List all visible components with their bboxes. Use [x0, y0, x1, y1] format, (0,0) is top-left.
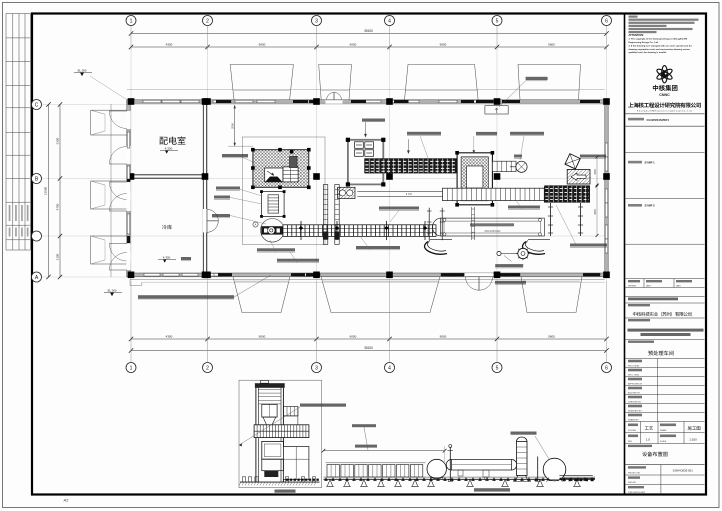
svg-text:EL.000: EL.000 — [108, 289, 117, 293]
svg-text:4300: 4300 — [166, 43, 173, 47]
svg-text:9000: 9000 — [259, 335, 266, 339]
svg-text:APPROVED BY: APPROVED BY — [628, 382, 643, 385]
svg-text:CO-SPZ0472/W74: CO-SPZ0472/W74 — [647, 118, 670, 122]
svg-text:3000: 3000 — [594, 169, 597, 175]
svg-text:1.0: 1.0 — [646, 438, 651, 442]
svg-text:SYWP 1: SYWP 1 — [645, 161, 656, 165]
svg-text:35100: 35100 — [364, 29, 373, 33]
svg-text:DRAWN BY: DRAWN BY — [628, 418, 639, 421]
svg-text:1: 1 — [130, 18, 133, 24]
svg-text:SCALE: SCALE — [660, 440, 667, 443]
svg-text:2. If the drawing isn’t stampe: 2. If the drawing isn’t stamped with our… — [629, 44, 692, 47]
svg-text:3800: 3800 — [594, 209, 597, 215]
svg-text:CNNC: CNNC — [659, 93, 670, 97]
svg-text:SYSTEM: SYSTEM — [628, 430, 636, 432]
svg-text:35100: 35100 — [364, 346, 373, 350]
svg-text:CHECKED BY: CHECKED BY — [628, 401, 642, 403]
svg-text:9000: 9000 — [440, 43, 447, 47]
svg-text:5600: 5600 — [548, 43, 555, 47]
svg-text:AUDITED BY: AUDITED BY — [628, 391, 641, 394]
svg-text:5: 5 — [496, 365, 499, 371]
svg-text:9000: 9000 — [440, 335, 447, 339]
svg-text:2NC100X402: 2NC100X402 — [484, 229, 501, 233]
svg-text:REV.: REV. — [628, 441, 633, 443]
svg-text:qualified seal, the drawing is: qualified seal, the drawing is invalid. — [629, 51, 667, 54]
svg-text:4.300: 4.300 — [165, 147, 173, 151]
svg-text:3: 3 — [315, 18, 318, 24]
svg-text:6: 6 — [605, 365, 608, 371]
svg-text:VERSION: VERSION — [628, 285, 637, 287]
svg-text:4: 4 — [388, 365, 391, 371]
svg-text:PROJ. MGR.: PROJ. MGR. — [628, 365, 640, 367]
svg-text:13080: 13080 — [44, 186, 48, 195]
svg-text:Engineering Design Co., Ltd.: Engineering Design Co., Ltd. — [629, 41, 659, 44]
svg-text:4.300: 4.300 — [163, 256, 171, 260]
svg-text:3: 3 — [315, 365, 318, 371]
svg-text:A: A — [255, 223, 257, 227]
svg-text:SJHV-D025-001: SJHV-D025-001 — [673, 469, 694, 473]
svg-text:1: 1 — [130, 365, 133, 371]
svg-text:DATE: DATE — [676, 284, 681, 287]
svg-text:4300: 4300 — [166, 335, 173, 339]
svg-text:6000: 6000 — [350, 43, 357, 47]
svg-text:9000: 9000 — [259, 43, 266, 47]
svg-text:8 10X: 8 10X — [406, 193, 413, 196]
svg-text:2: 2 — [206, 18, 209, 24]
svg-text:6: 6 — [605, 18, 608, 24]
svg-text:6000: 6000 — [350, 335, 357, 339]
svg-text:PUBLICATION DATE: PUBLICATION DATE — [628, 491, 646, 494]
svg-text:PROJECT NO.: PROJECT NO. — [628, 472, 641, 474]
svg-text:2500: 2500 — [230, 123, 234, 129]
svg-text:DESIGNED BY: DESIGNED BY — [628, 410, 642, 412]
svg-text:SPCL. MGR.: SPCL. MGR. — [628, 374, 640, 376]
svg-text:4: 4 — [388, 18, 391, 24]
svg-text:DWG NO.: DWG NO. — [628, 482, 637, 484]
svg-text:6300: 6300 — [56, 137, 60, 144]
svg-text:4700: 4700 — [56, 203, 60, 210]
svg-text:SYWP 2: SYWP 2 — [645, 204, 656, 208]
svg-text:3100: 3100 — [56, 253, 60, 260]
svg-text:drawing registration seal, and: drawing registration seal, and construct… — [629, 48, 691, 51]
svg-text:S h a n g h a i K M E n g i: S h a n g h a i K M E n g i n e e r i n … — [637, 109, 693, 112]
svg-text:ATTENTION:: ATTENTION: — [629, 33, 645, 37]
svg-text:2: 2 — [206, 365, 209, 371]
svg-text:EL.000: EL.000 — [78, 69, 87, 73]
svg-text:DATE: DATE — [646, 284, 651, 287]
svg-text:1:100: 1:100 — [689, 438, 697, 442]
svg-text:C: C — [35, 102, 39, 108]
svg-text:A2: A2 — [64, 498, 70, 503]
svg-text:5: 5 — [496, 18, 499, 24]
svg-text:5600: 5600 — [548, 335, 555, 339]
svg-text:1. The copyright of the drawin: 1. The copyright of the drawing belongs … — [629, 38, 688, 41]
svg-text:PHASE: PHASE — [660, 429, 667, 432]
